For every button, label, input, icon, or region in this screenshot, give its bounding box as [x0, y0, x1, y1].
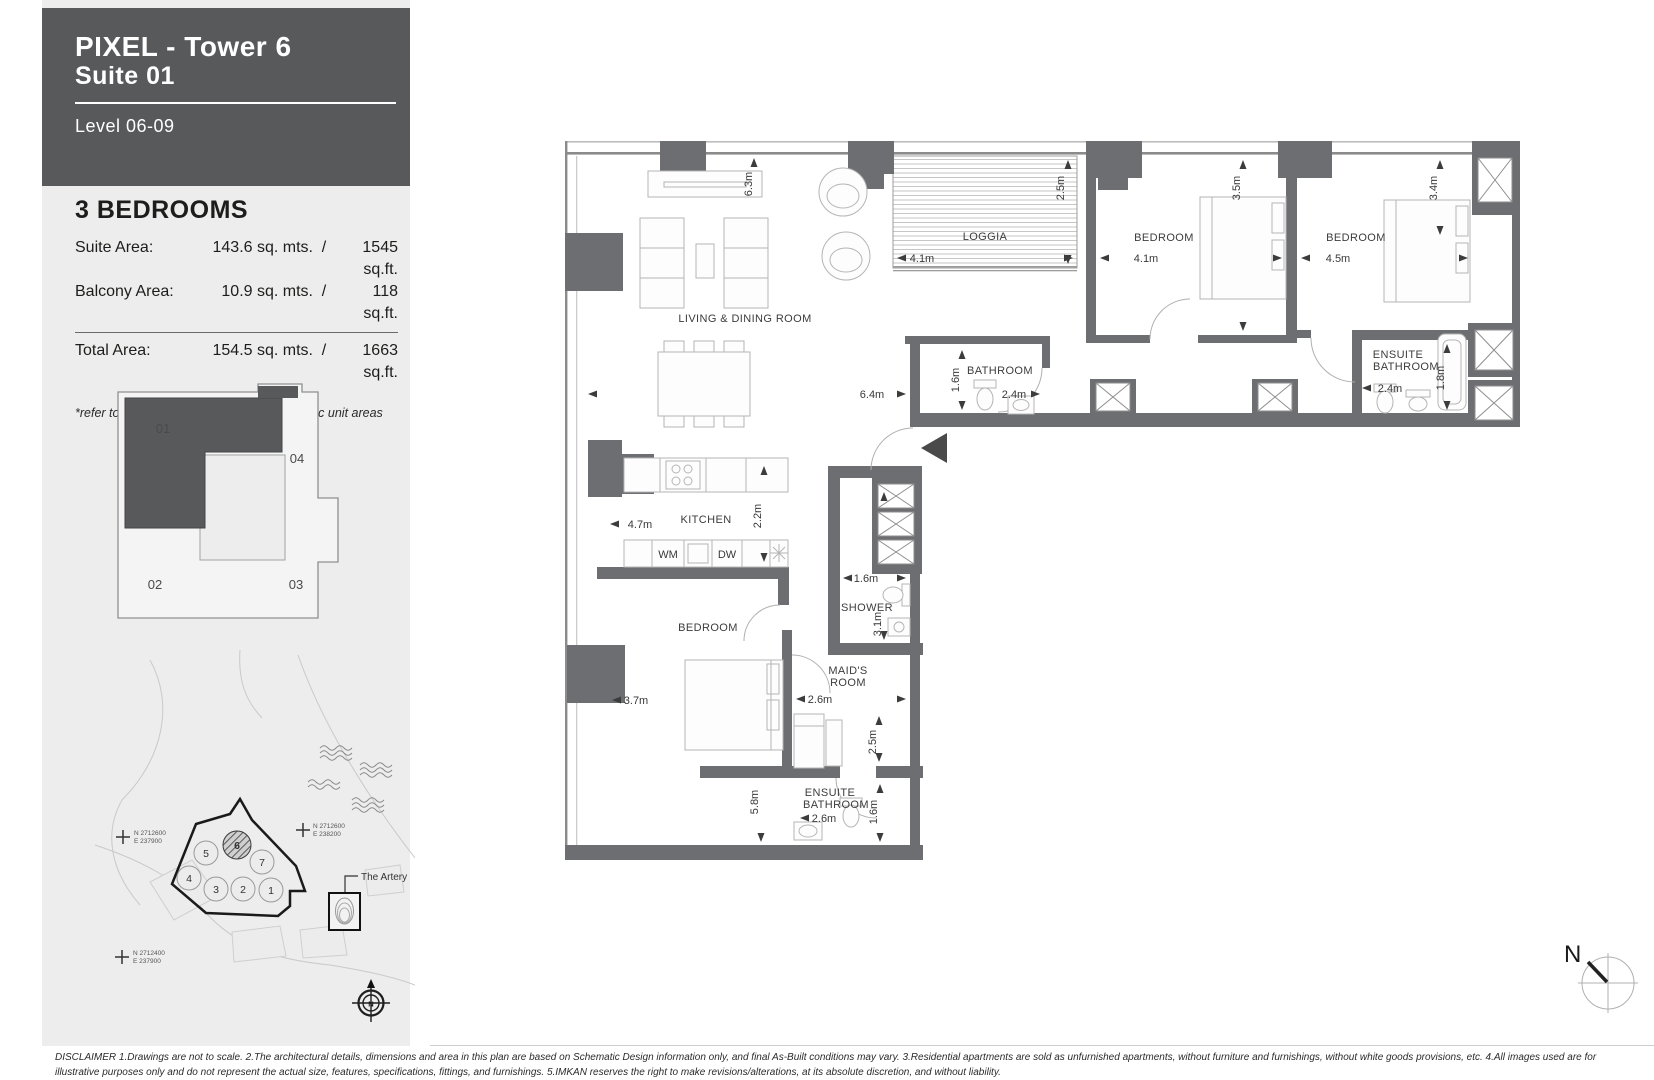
survey-left-n: N 2712600: [134, 830, 166, 837]
key-plan-unit03-label: 03: [289, 577, 303, 592]
dim-maids-width: 2.6m: [808, 694, 832, 706]
dim-ensuite2-width: 2.6m: [812, 813, 836, 825]
area-divider: [75, 332, 398, 333]
suite-title: Suite 01: [75, 62, 396, 90]
sidebar-compass-n: N: [368, 1000, 373, 1009]
bedroom1-label: BEDROOM: [1134, 232, 1194, 244]
plan-compass-n: N: [1564, 941, 1581, 968]
balcony-area-metric: 10.9 sq. mts.: [193, 281, 313, 325]
dim-bathroom-depth: 1.6m: [950, 368, 962, 392]
water-waves: [308, 746, 392, 813]
dim-maids-depth: 2.5m: [867, 730, 879, 754]
artery-building: [329, 876, 360, 930]
key-plan-unit01-label: 01: [156, 421, 170, 436]
balcony-area-label: Balcony Area:: [75, 281, 193, 325]
dim-loggia-width: 4.1m: [910, 253, 934, 265]
dim-bedroom3-width: 3.7m: [624, 695, 648, 707]
survey-marker-right: [296, 823, 310, 837]
dim-ensuite1-width: 2.4m: [1378, 383, 1402, 395]
dim-ensuite2-depth: 1.6m: [868, 800, 880, 824]
ensuite1-label-l1: ENSUITE: [1373, 349, 1423, 361]
balcony-area-row: Balcony Area: 10.9 sq. mts. / 118 sq.ft.: [75, 281, 398, 325]
site-b6: 6: [234, 840, 240, 852]
sidebar-compass: N: [352, 979, 390, 1022]
living-room-label: LIVING & DINING ROOM: [678, 313, 811, 325]
page: PIXEL - Tower 6 Suite 01 Level 06-09 3 B…: [0, 0, 1654, 1080]
dim-living-depth: 6.3m: [743, 172, 755, 196]
survey-bottom-e: E 237900: [133, 958, 161, 965]
suite-area-imperial: 1545 sq.ft.: [335, 237, 398, 281]
ensuite2-label-l2: BATHROOM: [803, 799, 869, 811]
dim-bedroom3-height: 5.8m: [749, 790, 761, 814]
slash: /: [313, 281, 335, 325]
survey-marker-left: [116, 830, 130, 844]
site-map: 5 7 4 3 2 1 6 N 2712600 E 237900 N 27126…: [85, 650, 415, 1025]
footer-divider: [430, 1045, 1654, 1046]
suite-area-label: Suite Area:: [75, 237, 193, 281]
dim-living-width: 6.4m: [860, 389, 884, 401]
dim-bathroom-width: 2.4m: [1002, 389, 1026, 401]
site-b4: 4: [186, 873, 192, 885]
survey-right-e: E 238200: [313, 831, 341, 838]
key-plan-courtyard: [200, 455, 285, 560]
project-title: PIXEL - Tower 6: [75, 32, 396, 62]
dim-bedroom1-width: 4.1m: [1134, 253, 1158, 265]
maids-room-label-l1: MAID'S: [828, 665, 867, 677]
dim-bedroom2-width: 4.5m: [1326, 253, 1350, 265]
maids-room-label-l2: ROOM: [830, 677, 866, 689]
site-b1: 1: [268, 885, 274, 897]
glazing-north-inner: [565, 152, 1515, 155]
survey-bottom-n: N 2712400: [133, 950, 165, 957]
glazing-north-outer: [565, 141, 1515, 143]
sidebar-header: PIXEL - Tower 6 Suite 01 Level 06-09: [42, 8, 410, 186]
bedrooms-heading: 3 BEDROOMS: [75, 196, 398, 225]
survey-left-e: E 237900: [134, 838, 162, 845]
plan-compass: N: [1564, 941, 1638, 1013]
disclaimer-text: DISCLAIMER 1.Drawings are not to scale. …: [55, 1050, 1643, 1080]
key-plan-unit04-label: 04: [290, 451, 304, 466]
site-b2: 2: [240, 884, 246, 896]
dim-bedroom1-depth: 3.5m: [1231, 176, 1243, 200]
site-b7: 7: [259, 857, 265, 869]
key-plan-unit02-label: 02: [148, 577, 162, 592]
suite-area-metric: 143.6 sq. mts.: [193, 237, 313, 281]
loggia-label: LOGGIA: [963, 231, 1008, 243]
suite-area-row: Suite Area: 143.6 sq. mts. / 1545 sq.ft.: [75, 237, 398, 281]
dishwasher-label: DW: [718, 549, 737, 561]
balcony-area-imperial: 118 sq.ft.: [335, 281, 398, 325]
ensuite2-label-l1: ENSUITE: [805, 787, 855, 799]
bedroom2-label: BEDROOM: [1326, 232, 1386, 244]
survey-marker-bottom: [115, 950, 129, 964]
slash: /: [313, 237, 335, 281]
entrance-arrow: [921, 433, 947, 463]
dim-loggia-depth: 2.5m: [1055, 176, 1067, 200]
level-label: Level 06-09: [75, 116, 396, 137]
bedroom3-label: BEDROOM: [678, 622, 738, 634]
header-rule: [75, 102, 396, 104]
dim-kitchen-width: 4.7m: [628, 519, 652, 531]
artery-label: The Artery: [361, 872, 407, 883]
key-plan: 01 04 02 03: [100, 370, 360, 630]
ensuite1-label-l2: BATHROOM: [1373, 361, 1439, 373]
site-b5: 5: [203, 848, 209, 860]
site-b3: 3: [213, 884, 219, 896]
floor-plan: LIVING & DINING ROOM LOGGIA BEDROOM BEDR…: [540, 120, 1650, 1025]
dim-kitchen-depth: 2.2m: [752, 504, 764, 528]
dim-shower-depth: 3.1m: [872, 612, 884, 636]
dim-bedroom2-depth: 3.4m: [1428, 176, 1440, 200]
washing-machine-label: WM: [658, 549, 678, 561]
bathroom-label: BATHROOM: [967, 365, 1033, 377]
dim-ensuite1-depth: 1.8m: [1435, 366, 1447, 390]
kitchen-label: KITCHEN: [680, 514, 731, 526]
survey-right-n: N 2712600: [313, 823, 345, 830]
furniture: [624, 168, 1470, 840]
shower-label: SHOWER: [841, 602, 893, 614]
key-plan-unit01-stem: [258, 386, 298, 398]
dim-shower-width: 1.6m: [854, 573, 878, 585]
